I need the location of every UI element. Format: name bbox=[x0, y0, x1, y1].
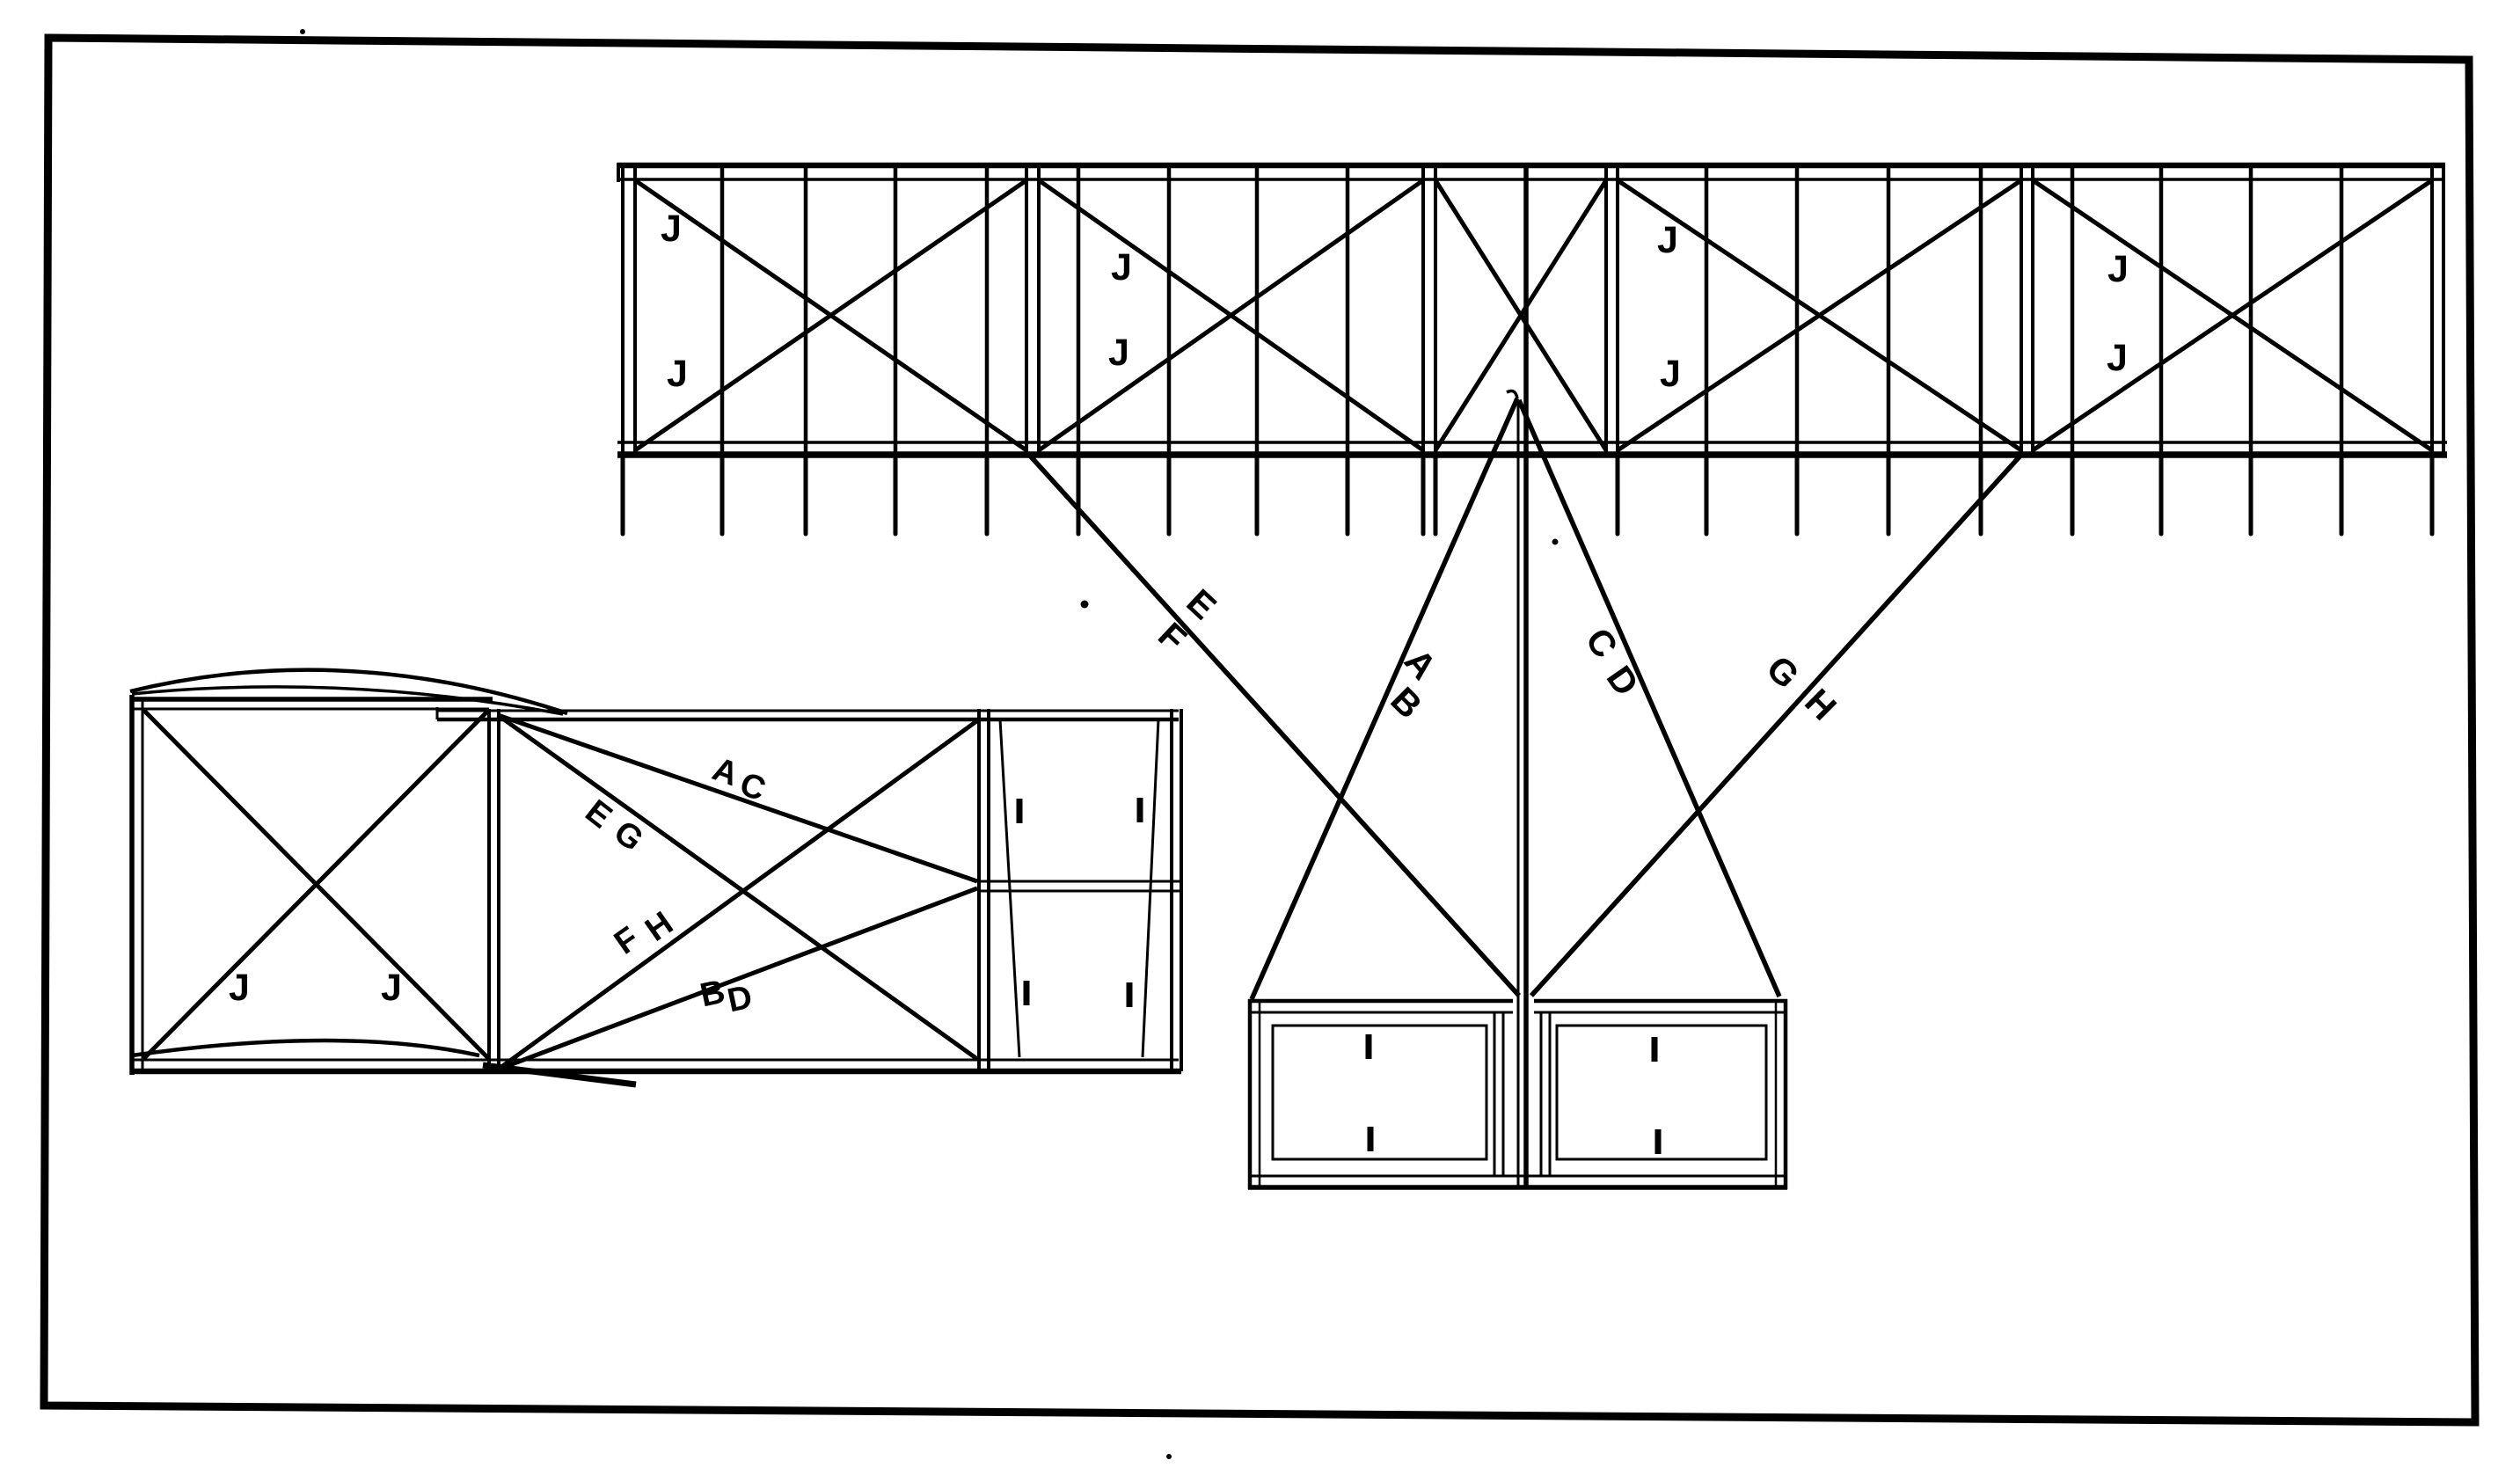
svg-text:J: J bbox=[1660, 353, 1681, 395]
svg-text:J: J bbox=[2107, 337, 2128, 379]
svg-text:J: J bbox=[2107, 248, 2129, 290]
svg-text:J: J bbox=[381, 967, 402, 1009]
svg-text:J: J bbox=[1657, 219, 1678, 261]
svg-text:J: J bbox=[1111, 246, 1132, 288]
svg-text:J: J bbox=[661, 208, 682, 250]
svg-text:J: J bbox=[667, 353, 688, 395]
svg-text:J: J bbox=[229, 967, 250, 1009]
svg-text:J: J bbox=[1108, 332, 1129, 374]
